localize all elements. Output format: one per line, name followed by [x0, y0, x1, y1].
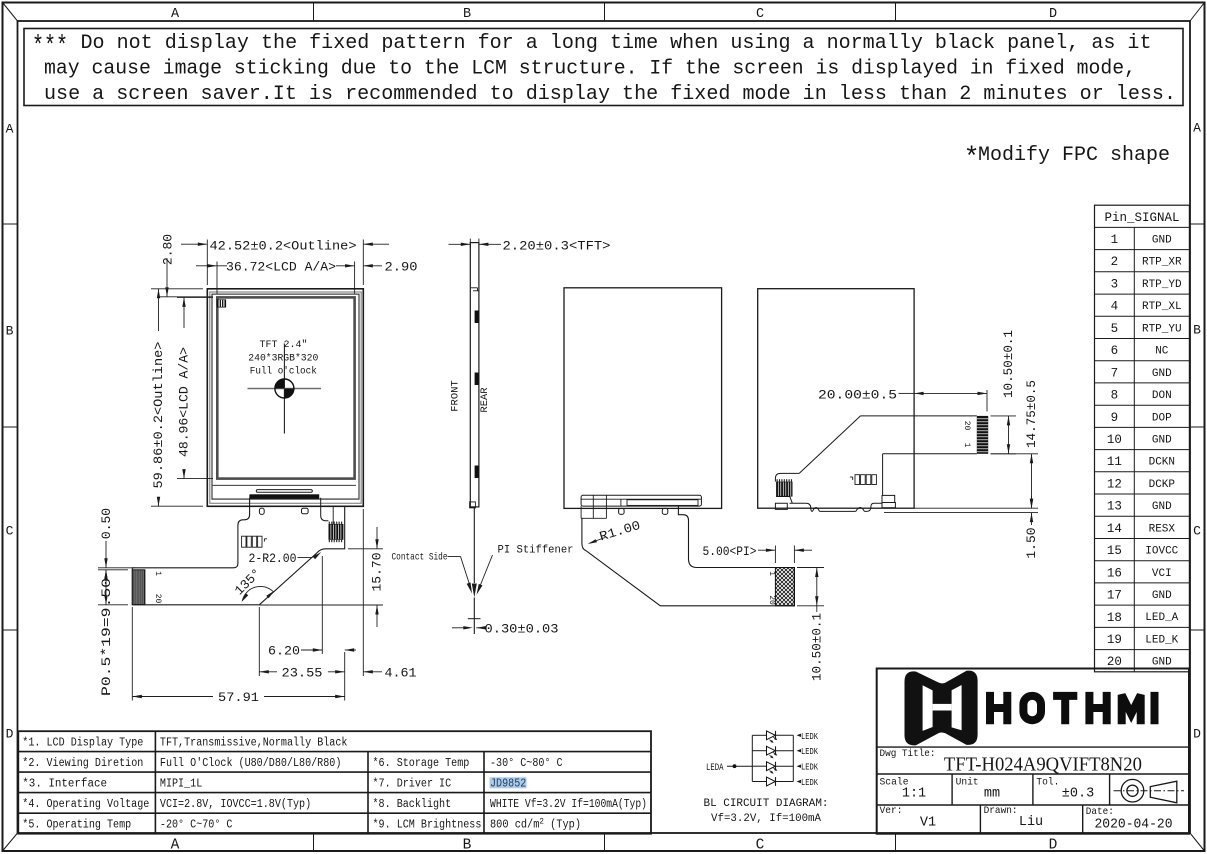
svg-text:240*3RGB*320: 240*3RGB*320: [248, 352, 318, 364]
svg-text:14.75±0.5: 14.75±0.5: [1024, 380, 1039, 448]
svg-text:20: 20: [767, 595, 776, 605]
svg-text:RTP_XR: RTP_XR: [1142, 257, 1182, 269]
svg-text:6: 6: [1111, 344, 1119, 358]
svg-text:13: 13: [1107, 500, 1122, 514]
svg-text:NC: NC: [1155, 346, 1169, 358]
svg-text:Liu: Liu: [1019, 815, 1043, 830]
svg-text:TFT-H024A9QVIFT8N20: TFT-H024A9QVIFT8N20: [944, 753, 1142, 775]
svg-text:20: 20: [1107, 655, 1122, 669]
svg-text:14: 14: [1107, 522, 1122, 536]
svg-text:*9. LCM Brightness: *9. LCM Brightness: [373, 819, 482, 832]
svg-text:2-R2.00: 2-R2.00: [249, 551, 297, 566]
svg-text:Unit: Unit: [956, 777, 979, 789]
svg-text:MIPI_1L: MIPI_1L: [160, 778, 202, 791]
svg-text:Tol.: Tol.: [1036, 777, 1059, 789]
svg-text:C: C: [756, 7, 764, 22]
svg-text:12: 12: [1107, 477, 1122, 491]
svg-text:20: 20: [153, 594, 162, 604]
svg-text:RTP_YU: RTP_YU: [1142, 323, 1182, 335]
svg-text:7: 7: [1111, 366, 1119, 380]
svg-text:VCI: VCI: [1152, 568, 1172, 580]
svg-text:GND: GND: [1152, 235, 1172, 247]
svg-text:1: 1: [767, 571, 776, 576]
svg-text:*7. Driver IC: *7. Driver IC: [373, 778, 452, 791]
svg-text:10: 10: [1107, 433, 1122, 447]
svg-text:1.50: 1.50: [1024, 527, 1039, 558]
svg-text:Do not display the fixed patte: Do not display the fixed pattern for a l…: [81, 32, 1152, 55]
svg-text:LEDK: LEDK: [801, 762, 818, 773]
svg-text:0.30±0.03: 0.30±0.03: [485, 622, 559, 637]
svg-text:C: C: [756, 838, 765, 854]
svg-text:*5. Operating Temp: *5. Operating Temp: [22, 819, 131, 832]
svg-text:mm: mm: [984, 787, 1000, 802]
svg-text:GND: GND: [1152, 501, 1172, 513]
svg-text:10.50±0.1: 10.50±0.1: [810, 613, 825, 681]
svg-text:A: A: [171, 838, 180, 854]
svg-text:DON: DON: [1152, 390, 1172, 402]
svg-text:0.50: 0.50: [99, 508, 114, 539]
svg-text:Dwg Title:: Dwg Title:: [880, 748, 936, 760]
svg-text:20: 20: [962, 421, 971, 431]
svg-text:6.20: 6.20: [268, 644, 300, 659]
svg-text:LED_K: LED_K: [1145, 635, 1178, 647]
svg-text:*4. Operating Voltage: *4. Operating Voltage: [22, 798, 149, 811]
svg-text:59.86±0.2<Outline>: 59.86±0.2<Outline>: [151, 341, 166, 488]
svg-text:*8. Backlight: *8. Backlight: [373, 798, 452, 811]
svg-text:*1. LCD Display Type: *1. LCD Display Type: [22, 737, 143, 750]
svg-text:20.00±0.5: 20.00±0.5: [818, 387, 897, 402]
svg-text:GND: GND: [1152, 368, 1172, 380]
svg-text:57.91: 57.91: [218, 690, 259, 705]
svg-text:1:1: 1:1: [902, 787, 926, 802]
svg-text:LED_A: LED_A: [1145, 612, 1178, 624]
svg-text:*2. Viewing Diretion: *2. Viewing Diretion: [22, 757, 143, 770]
svg-text:Vf=3.2V, If=100mA: Vf=3.2V, If=100mA: [711, 813, 821, 825]
svg-text:23.55: 23.55: [282, 666, 323, 681]
svg-text:DOP: DOP: [1152, 412, 1172, 424]
svg-text:17: 17: [1107, 589, 1122, 603]
svg-text:18: 18: [1107, 611, 1122, 625]
svg-text:P0.5*19=9.50: P0.5*19=9.50: [99, 578, 114, 696]
svg-text:*6. Storage Temp: *6. Storage Temp: [373, 757, 470, 770]
svg-text:WHITE Vf=3.2V If=100mA(Typ): WHITE Vf=3.2V If=100mA(Typ): [490, 798, 647, 811]
svg-text:IOVCC: IOVCC: [1145, 546, 1178, 558]
svg-text:42.52±0.2<Outline>: 42.52±0.2<Outline>: [210, 238, 357, 253]
svg-text:PI Stiffener: PI Stiffener: [498, 545, 574, 557]
svg-text:2.20±0.3<TFT>: 2.20±0.3<TFT>: [503, 238, 611, 253]
svg-text:±0.3: ±0.3: [1062, 787, 1094, 802]
svg-text:TFT,Transmissive,Normally Blac: TFT,Transmissive,Normally Black: [160, 737, 348, 750]
svg-text:3: 3: [1111, 277, 1119, 291]
svg-text:48.96<LCD A/A>: 48.96<LCD A/A>: [177, 347, 192, 457]
svg-text:C: C: [6, 524, 14, 539]
svg-text:11: 11: [1107, 455, 1122, 469]
svg-text:GND: GND: [1152, 435, 1172, 447]
svg-text:1: 1: [1111, 233, 1119, 247]
svg-text:REAR: REAR: [479, 387, 491, 413]
svg-text:B: B: [463, 7, 471, 22]
svg-text:1: 1: [962, 443, 971, 448]
svg-text:FRONT: FRONT: [450, 380, 462, 412]
svg-text:5.00<PI>: 5.00<PI>: [703, 544, 757, 559]
svg-text:4.61: 4.61: [385, 666, 417, 681]
svg-text:19: 19: [1107, 633, 1122, 647]
svg-text:JD9852: JD9852: [490, 778, 526, 791]
svg-text:1: 1: [153, 571, 162, 576]
svg-text:RTP_YD: RTP_YD: [1142, 279, 1182, 291]
svg-text:Date:: Date:: [1086, 806, 1114, 818]
svg-text:Modify FPC shape: Modify FPC shape: [978, 144, 1170, 167]
svg-text:15: 15: [1107, 544, 1122, 558]
svg-text:DCKP: DCKP: [1149, 479, 1176, 491]
svg-text:use a screen saver.It is recom: use a screen saver.It is recommended to …: [44, 83, 1176, 106]
svg-text:D: D: [1049, 838, 1058, 854]
svg-text:B: B: [1193, 323, 1201, 338]
svg-text:BL CIRCUIT DIAGRAM:: BL CIRCUIT DIAGRAM:: [704, 798, 829, 810]
svg-text:*3. Interface: *3. Interface: [22, 778, 107, 791]
svg-text:GND: GND: [1152, 590, 1172, 602]
svg-text:Full O'Clock (U80/D80/L80/R80): Full O'Clock (U80/D80/L80/R80): [160, 757, 342, 770]
svg-text:Full o'clock: Full o'clock: [250, 366, 317, 378]
svg-text:LEDA: LEDA: [706, 763, 724, 774]
svg-text:D: D: [6, 727, 14, 742]
svg-text:may cause image sticking due t: may cause image sticking due to the LCM …: [44, 58, 1136, 81]
svg-text:RTP_XL: RTP_XL: [1142, 301, 1182, 313]
svg-text:A: A: [1193, 121, 1201, 136]
svg-text:36.72<LCD A/A>: 36.72<LCD A/A>: [226, 260, 336, 275]
svg-text:Ver:: Ver:: [880, 805, 903, 817]
svg-text:D: D: [1193, 727, 1201, 742]
svg-text:5: 5: [1111, 322, 1119, 336]
svg-text:A: A: [171, 7, 180, 22]
svg-text:2.90: 2.90: [385, 260, 418, 275]
svg-text:8: 8: [1111, 389, 1119, 403]
svg-text:GND: GND: [1152, 657, 1172, 669]
svg-text:15.70: 15.70: [370, 552, 385, 591]
svg-text:V1: V1: [920, 816, 936, 831]
svg-text:2.80: 2.80: [161, 234, 176, 265]
svg-text:-30° C~80° C: -30° C~80° C: [490, 757, 563, 770]
svg-text:-20° C~70° C: -20° C~70° C: [160, 819, 233, 832]
svg-text:Drawn:: Drawn:: [984, 805, 1018, 817]
svg-text:VCI=2.8V, IOVCC=1.8V(Typ): VCI=2.8V, IOVCC=1.8V(Typ): [160, 798, 311, 811]
svg-text:LEDK: LEDK: [801, 746, 818, 757]
svg-text:B: B: [463, 838, 472, 854]
svg-text:800 cd/m2 (Typ): 800 cd/m2 (Typ): [490, 817, 581, 832]
svg-text:A: A: [6, 122, 14, 137]
svg-text:C: C: [1193, 524, 1201, 539]
svg-text:16: 16: [1107, 566, 1122, 580]
svg-text:Pin_SIGNAL: Pin_SIGNAL: [1104, 211, 1179, 225]
svg-text:Contact Side: Contact Side: [392, 552, 448, 564]
svg-text:9: 9: [1111, 411, 1119, 425]
svg-text:10.50±0.1: 10.50±0.1: [1001, 330, 1016, 398]
svg-text:TFT 2.4″: TFT 2.4″: [259, 339, 307, 351]
svg-text:LEDK: LEDK: [801, 731, 818, 742]
svg-text:B: B: [6, 324, 14, 339]
svg-text:RESX: RESX: [1149, 523, 1176, 535]
svg-text:LEDK: LEDK: [801, 777, 818, 788]
svg-text:2020-04-20: 2020-04-20: [1095, 817, 1173, 832]
svg-text:4: 4: [1111, 300, 1119, 314]
svg-text:D: D: [1049, 7, 1057, 22]
svg-text:2: 2: [1111, 255, 1119, 269]
svg-text:DCKN: DCKN: [1149, 457, 1175, 469]
